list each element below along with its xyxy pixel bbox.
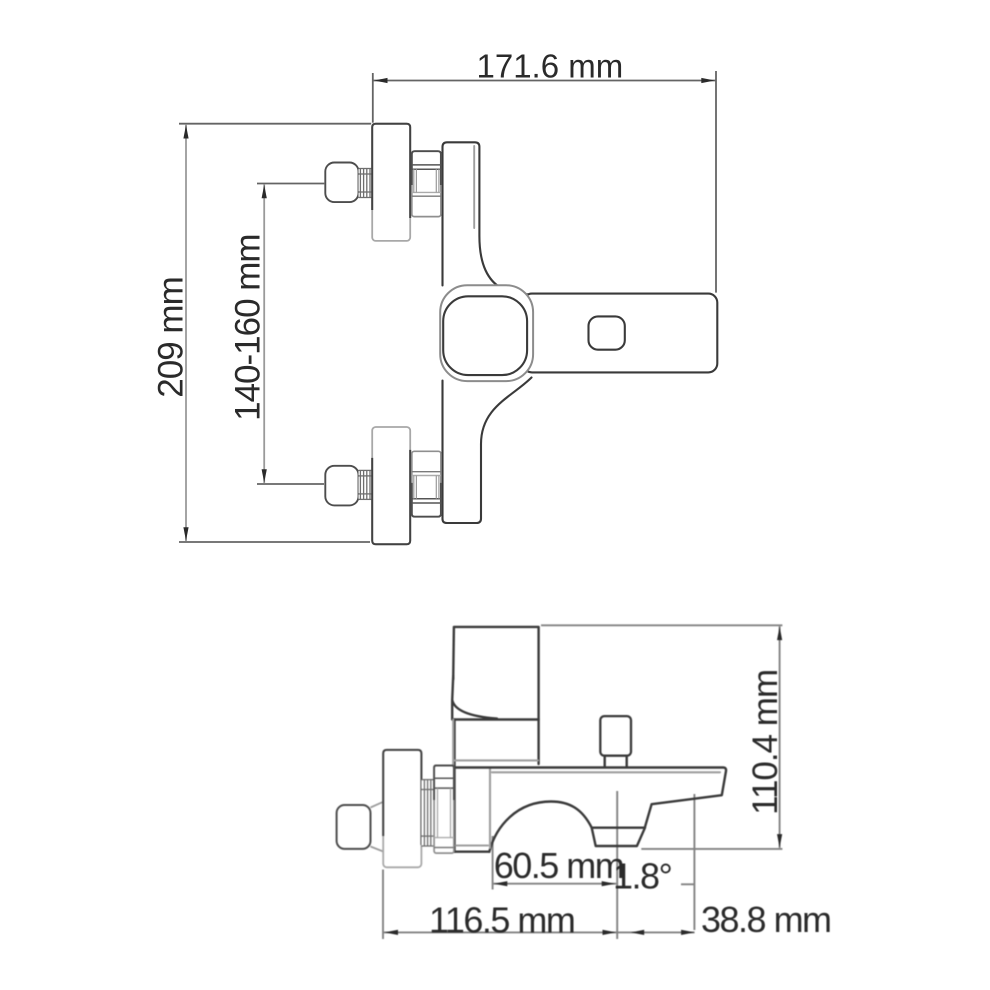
svg-text:1.8°: 1.8° <box>613 856 672 897</box>
svg-text:116.5 mm: 116.5 mm <box>429 899 574 940</box>
svg-text:140-160 mm: 140-160 mm <box>229 234 268 420</box>
svg-text:38.8 mm: 38.8 mm <box>701 899 831 940</box>
svg-text:60.5 mm: 60.5 mm <box>494 845 624 886</box>
svg-text:209 mm: 209 mm <box>152 277 191 397</box>
svg-text:171.6 mm: 171.6 mm <box>477 48 624 85</box>
svg-text:110.4 mm: 110.4 mm <box>746 670 785 815</box>
